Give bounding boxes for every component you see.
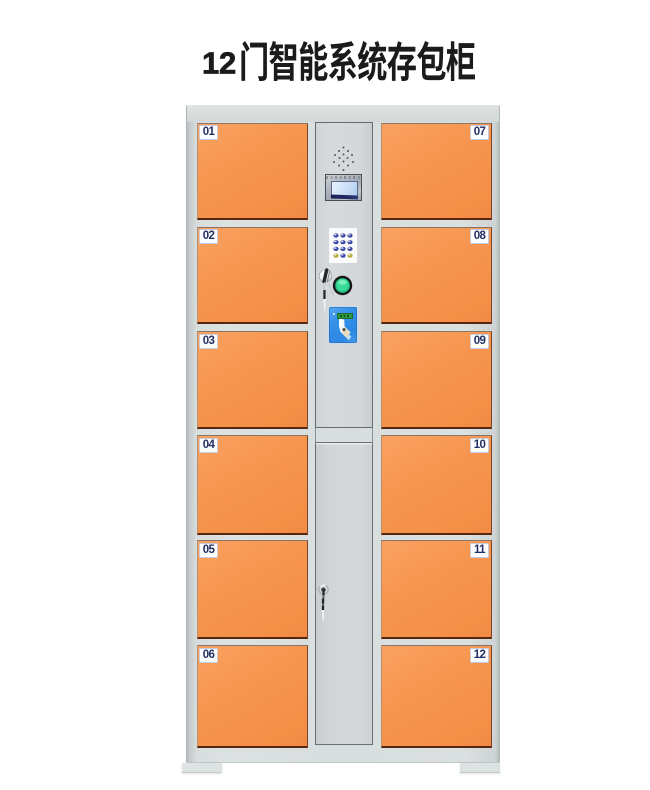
svg-text:12: 12 (202, 45, 236, 80)
